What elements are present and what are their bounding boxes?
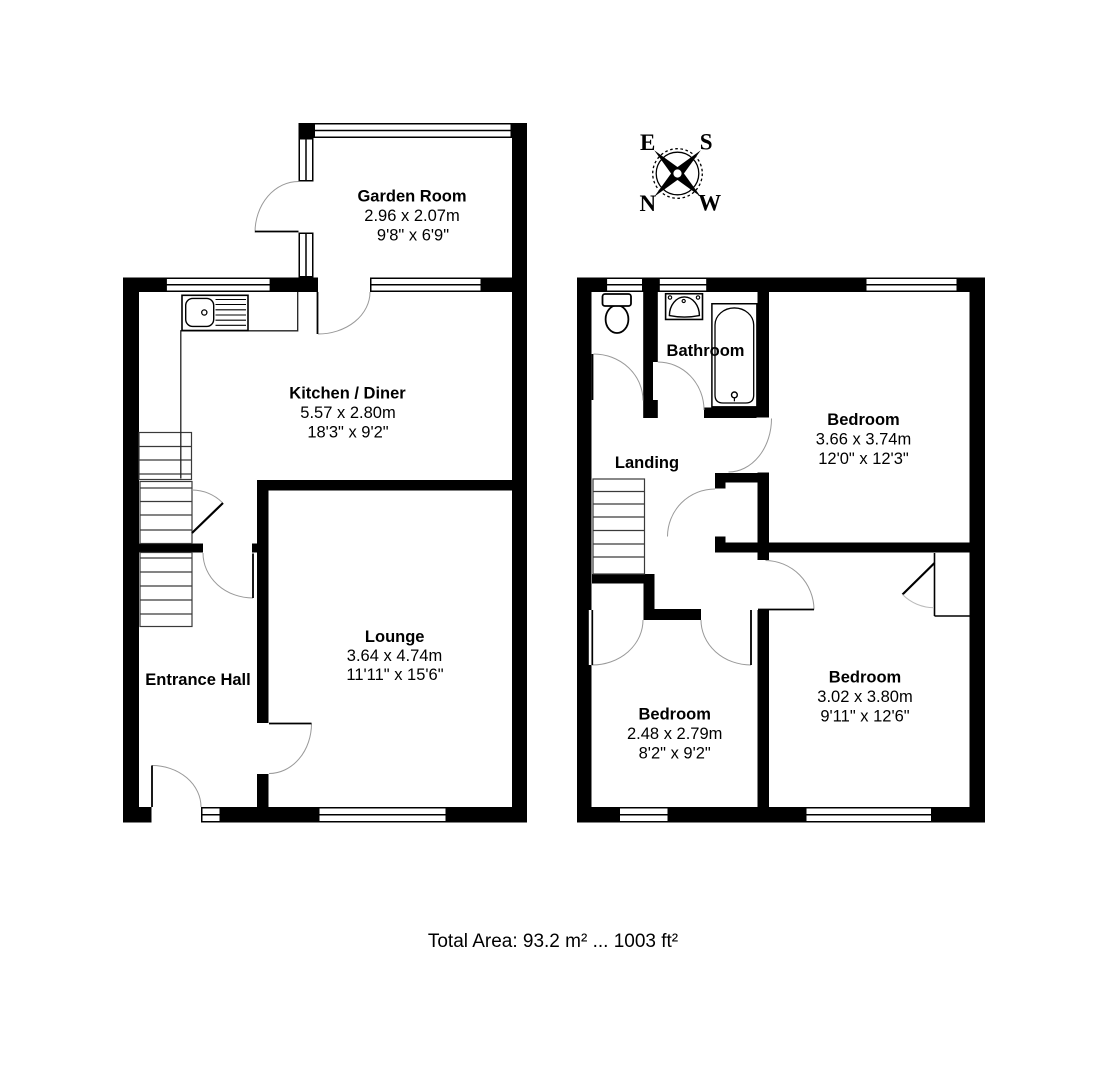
svg-text:Bathroom: Bathroom bbox=[667, 342, 745, 360]
svg-text:3.64 x 4.74m: 3.64 x 4.74m bbox=[347, 647, 442, 665]
svg-text:N: N bbox=[639, 191, 656, 216]
svg-text:Garden Room: Garden Room bbox=[357, 188, 466, 206]
svg-text:5.57 x 2.80m: 5.57 x 2.80m bbox=[300, 404, 395, 422]
svg-text:11'11" x 15'6": 11'11" x 15'6" bbox=[346, 666, 443, 684]
svg-text:18'3" x 9'2": 18'3" x 9'2" bbox=[307, 424, 388, 442]
svg-text:Landing: Landing bbox=[615, 454, 679, 472]
svg-text:3.02 x 3.80m: 3.02 x 3.80m bbox=[817, 688, 912, 706]
svg-text:Kitchen / Diner: Kitchen / Diner bbox=[289, 385, 406, 403]
svg-text:12'0" x 12'3": 12'0" x 12'3" bbox=[818, 450, 909, 468]
svg-text:2.96 x 2.07m: 2.96 x 2.07m bbox=[364, 207, 459, 225]
svg-text:S: S bbox=[700, 130, 713, 155]
svg-text:Bedroom: Bedroom bbox=[829, 669, 901, 687]
svg-text:Bedroom: Bedroom bbox=[827, 411, 899, 429]
svg-text:Entrance Hall: Entrance Hall bbox=[145, 671, 250, 689]
svg-text:Total Area: 93.2 m² ... 1003 f: Total Area: 93.2 m² ... 1003 ft² bbox=[428, 931, 678, 952]
svg-text:8'2" x 9'2": 8'2" x 9'2" bbox=[639, 745, 711, 763]
svg-text:9'8" x 6'9": 9'8" x 6'9" bbox=[377, 227, 449, 245]
svg-text:Lounge: Lounge bbox=[365, 628, 425, 646]
svg-text:Bedroom: Bedroom bbox=[638, 706, 710, 724]
svg-text:3.66 x 3.74m: 3.66 x 3.74m bbox=[816, 431, 911, 449]
svg-text:E: E bbox=[640, 130, 655, 155]
svg-text:9'11" x 12'6": 9'11" x 12'6" bbox=[820, 708, 909, 726]
svg-text:W: W bbox=[698, 191, 721, 216]
svg-text:2.48 x 2.79m: 2.48 x 2.79m bbox=[627, 725, 722, 743]
